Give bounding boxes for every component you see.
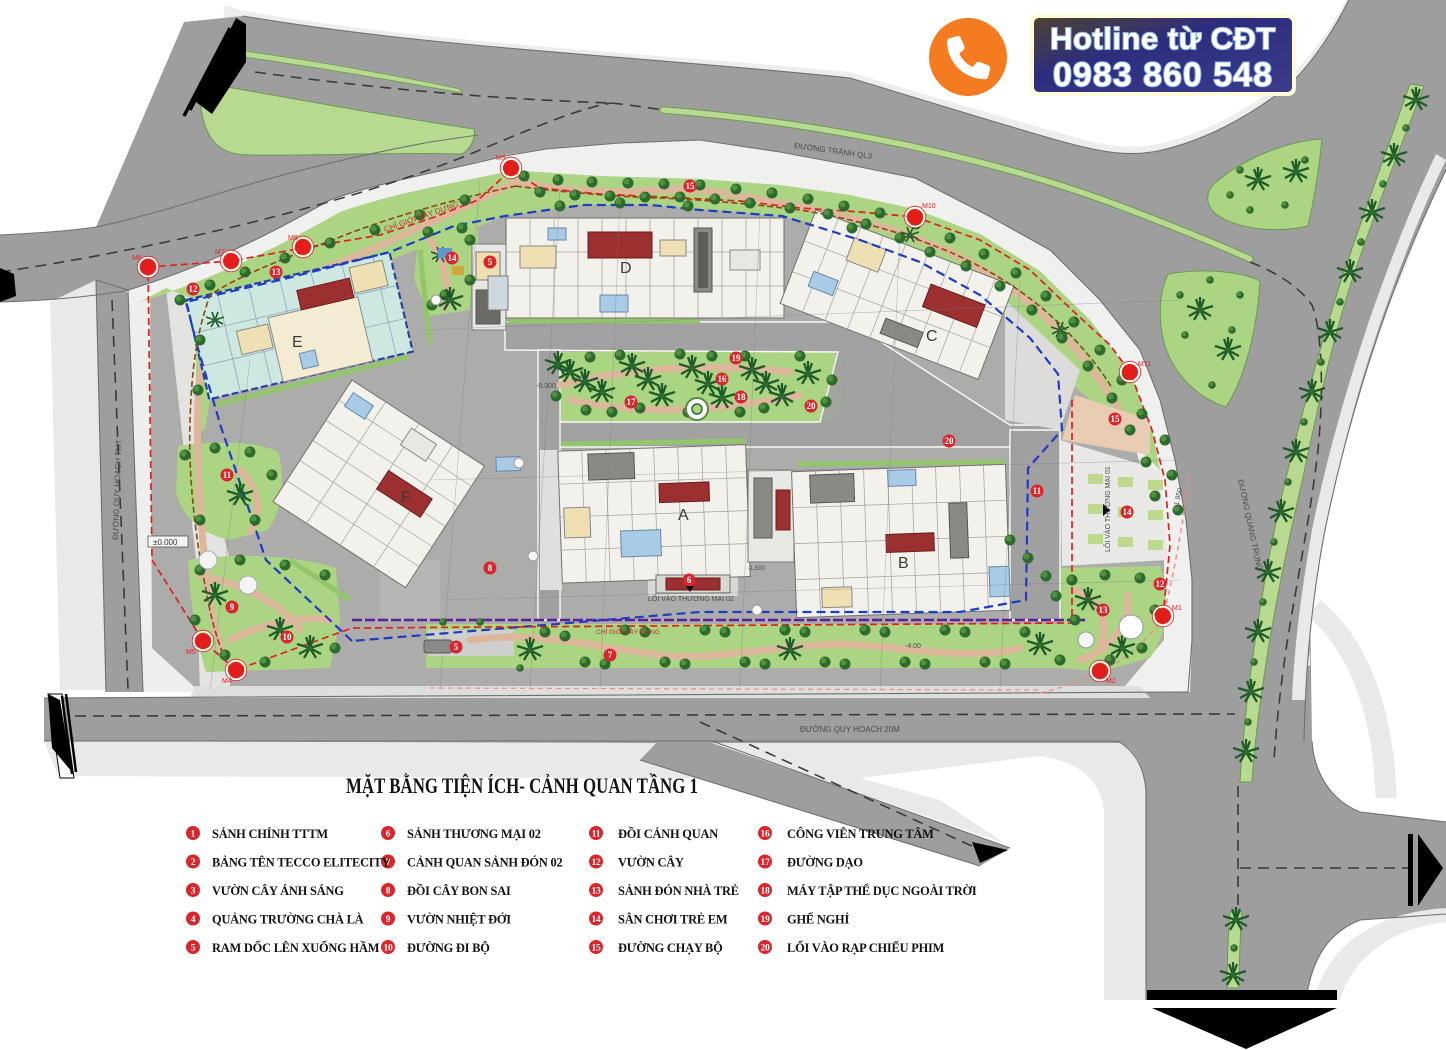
svg-text:18: 18	[760, 887, 770, 897]
svg-text:CÔNG VIÊN TRUNG TÂM: CÔNG VIÊN TRUNG TÂM	[787, 827, 934, 841]
svg-text:5: 5	[488, 257, 493, 267]
svg-text:M11: M11	[1138, 361, 1151, 368]
svg-text:16: 16	[760, 830, 770, 840]
svg-text:0983 860 548: 0983 860 548	[1053, 56, 1273, 94]
svg-text:20: 20	[760, 944, 770, 954]
svg-text:1: 1	[191, 830, 196, 840]
svg-text:C: C	[926, 328, 938, 345]
svg-text:19: 19	[732, 353, 742, 363]
svg-text:9: 9	[230, 602, 235, 612]
svg-text:14: 14	[448, 253, 458, 263]
svg-text:11: 11	[223, 470, 232, 480]
svg-text:8: 8	[488, 563, 493, 573]
svg-text:7: 7	[608, 650, 613, 660]
svg-text:VƯỜN NHIỆT ĐỚI: VƯỜN NHIỆT ĐỚI	[407, 913, 511, 927]
svg-text:RAM DỐC LÊN XUỐNG HẦM: RAM DỐC LÊN XUỐNG HẦM	[212, 940, 380, 955]
svg-text:13: 13	[272, 267, 282, 277]
svg-text:±0.000: ±0.000	[153, 538, 178, 547]
svg-text:20: 20	[945, 436, 955, 446]
svg-text:ĐƯỜNG DẠO: ĐƯỜNG DẠO	[787, 856, 863, 870]
svg-text:11: 11	[592, 830, 601, 840]
svg-text:14: 14	[1123, 507, 1133, 517]
svg-text:MÁY TẬP THỂ DỤC NGOÀI TRỜI: MÁY TẬP THỂ DỤC NGOÀI TRỜI	[787, 883, 977, 898]
svg-text:10: 10	[383, 944, 393, 954]
svg-text:19: 19	[760, 915, 770, 925]
svg-text:6: 6	[687, 575, 692, 585]
svg-text:BẢNG TÊN TECCO ELITECITY: BẢNG TÊN TECCO ELITECITY	[212, 856, 390, 870]
svg-text:SẢNH CHÍNH TTTM: SẢNH CHÍNH TTTM	[212, 827, 328, 841]
svg-text:ĐỒI CÂY BON SAI: ĐỒI CÂY BON SAI	[407, 883, 511, 898]
svg-text:3: 3	[191, 887, 196, 897]
svg-text:13: 13	[591, 887, 601, 897]
svg-text:M9: M9	[496, 155, 506, 162]
svg-text:VƯỜN CÂY ÁNH SÁNG: VƯỜN CÂY ÁNH SÁNG	[212, 884, 344, 898]
svg-text:15: 15	[1111, 414, 1121, 424]
svg-text:14: 14	[591, 915, 601, 925]
svg-text:20: 20	[807, 401, 817, 411]
svg-text:17: 17	[760, 858, 770, 868]
svg-text:SẢNH THƯƠNG MẠI 02: SẢNH THƯƠNG MẠI 02	[407, 827, 541, 841]
svg-text:MẶT BẰNG TIỆN ÍCH- CẢNH QUAN T: MẶT BẰNG TIỆN ÍCH- CẢNH QUAN TẦNG 1	[346, 773, 698, 798]
svg-text:12: 12	[591, 858, 601, 868]
svg-text:M5: M5	[186, 649, 196, 656]
svg-text:8: 8	[386, 887, 391, 897]
svg-text:M6: M6	[132, 255, 142, 262]
svg-text:17: 17	[627, 397, 637, 407]
svg-text:VƯỜN CÂY: VƯỜN CÂY	[618, 856, 684, 870]
svg-text:4: 4	[191, 915, 196, 925]
svg-text:M8: M8	[288, 235, 298, 242]
svg-text:12: 12	[1156, 579, 1166, 589]
svg-text:12: 12	[189, 284, 199, 294]
svg-text:A: A	[678, 507, 689, 524]
svg-text:QUẢNG TRƯỜNG CHÀ LÀ: QUẢNG TRƯỜNG CHÀ LÀ	[212, 913, 364, 927]
svg-text:10: 10	[283, 632, 293, 642]
svg-text:LỐI VÀO RẠP CHIẾU PHIM: LỐI VÀO RẠP CHIẾU PHIM	[787, 940, 945, 955]
svg-text:ĐƯỜNG ĐI BỘ: ĐƯỜNG ĐI BỘ	[407, 941, 490, 955]
svg-text:-1.500: -1.500	[748, 566, 766, 572]
svg-text:-4.00: -4.00	[905, 643, 921, 650]
svg-text:B: B	[898, 555, 909, 572]
svg-text:CẢNH QUAN SẢNH ĐÓN 02: CẢNH QUAN SẢNH ĐÓN 02	[407, 856, 563, 870]
svg-text:2: 2	[191, 858, 196, 868]
svg-text:ĐỒI CẢNH QUAN: ĐỒI CẢNH QUAN	[618, 826, 718, 841]
svg-text:M10: M10	[922, 203, 936, 210]
svg-text:F: F	[401, 489, 411, 506]
svg-text:D: D	[620, 260, 632, 277]
svg-text:13: 13	[1099, 605, 1109, 615]
svg-text:9: 9	[386, 915, 391, 925]
svg-text:6: 6	[386, 830, 391, 840]
svg-text:SÂN CHƠI TRẺ EM: SÂN CHƠI TRẺ EM	[618, 913, 728, 927]
svg-text:CHỈ GIỚI XÂY DỰNG: CHỈ GIỚI XÂY DỰNG	[596, 627, 660, 636]
svg-text:M1: M1	[1172, 605, 1182, 612]
svg-text:M4: M4	[222, 678, 232, 685]
svg-text:16: 16	[718, 374, 728, 384]
svg-text:Hotline từ CĐT: Hotline từ CĐT	[1050, 21, 1276, 56]
svg-text:15: 15	[591, 944, 601, 954]
svg-text:M7: M7	[215, 249, 225, 256]
svg-text:5: 5	[191, 944, 196, 954]
svg-text:18: 18	[737, 392, 747, 402]
svg-text:-0.300: -0.300	[536, 383, 556, 390]
svg-text:GHẾ NGHỈ: GHẾ NGHỈ	[787, 912, 849, 927]
svg-text:E: E	[292, 334, 303, 351]
svg-text:5: 5	[454, 642, 459, 652]
svg-text:ĐƯỜNG QUY HOẠCH 20M: ĐƯỜNG QUY HOẠCH 20M	[800, 725, 900, 734]
svg-text:15: 15	[686, 181, 696, 191]
svg-text:11: 11	[1033, 486, 1042, 496]
svg-text:ĐƯỜNG CHẠY BỘ: ĐƯỜNG CHẠY BỘ	[618, 941, 723, 955]
svg-text:M2: M2	[1106, 678, 1116, 685]
svg-text:SẢNH ĐÓN NHÀ TRẺ: SẢNH ĐÓN NHÀ TRẺ	[618, 884, 739, 898]
